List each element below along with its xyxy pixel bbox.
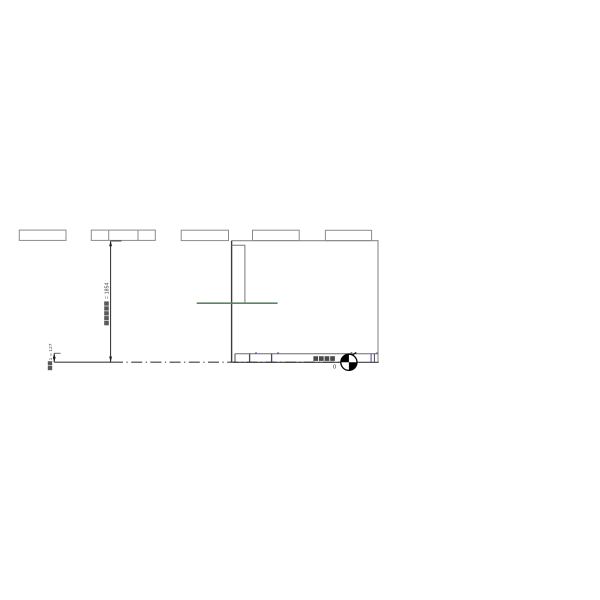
svg-text:0: 0	[333, 364, 336, 370]
svg-text:1 = 127: 1 = 127	[48, 343, 53, 360]
svg-text:= 1854: = 1854	[105, 282, 111, 299]
